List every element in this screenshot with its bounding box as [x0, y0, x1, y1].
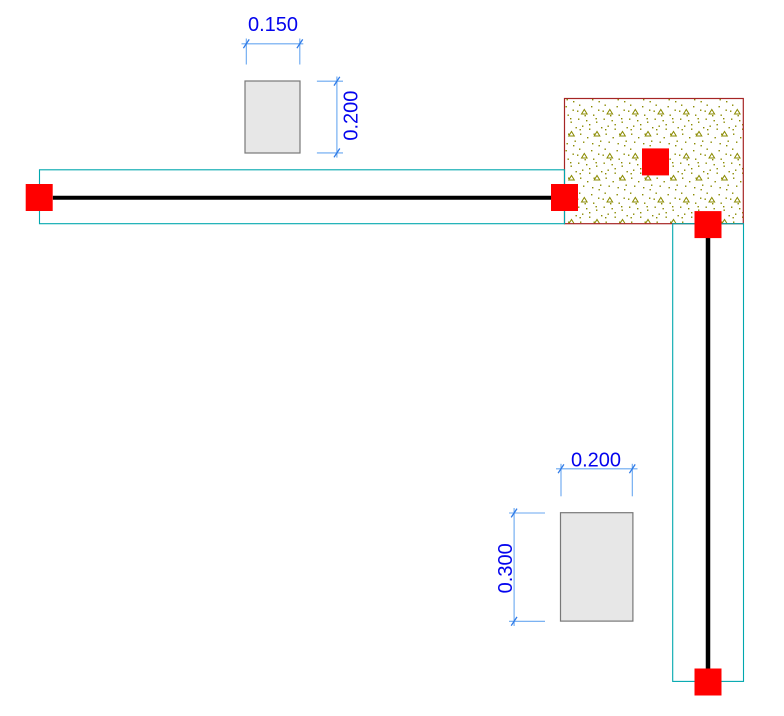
svg-text:0.150: 0.150 [248, 14, 298, 36]
svg-text:0.300: 0.300 [495, 543, 517, 593]
svg-text:0.200: 0.200 [340, 91, 362, 141]
svg-text:0.200: 0.200 [571, 450, 621, 472]
